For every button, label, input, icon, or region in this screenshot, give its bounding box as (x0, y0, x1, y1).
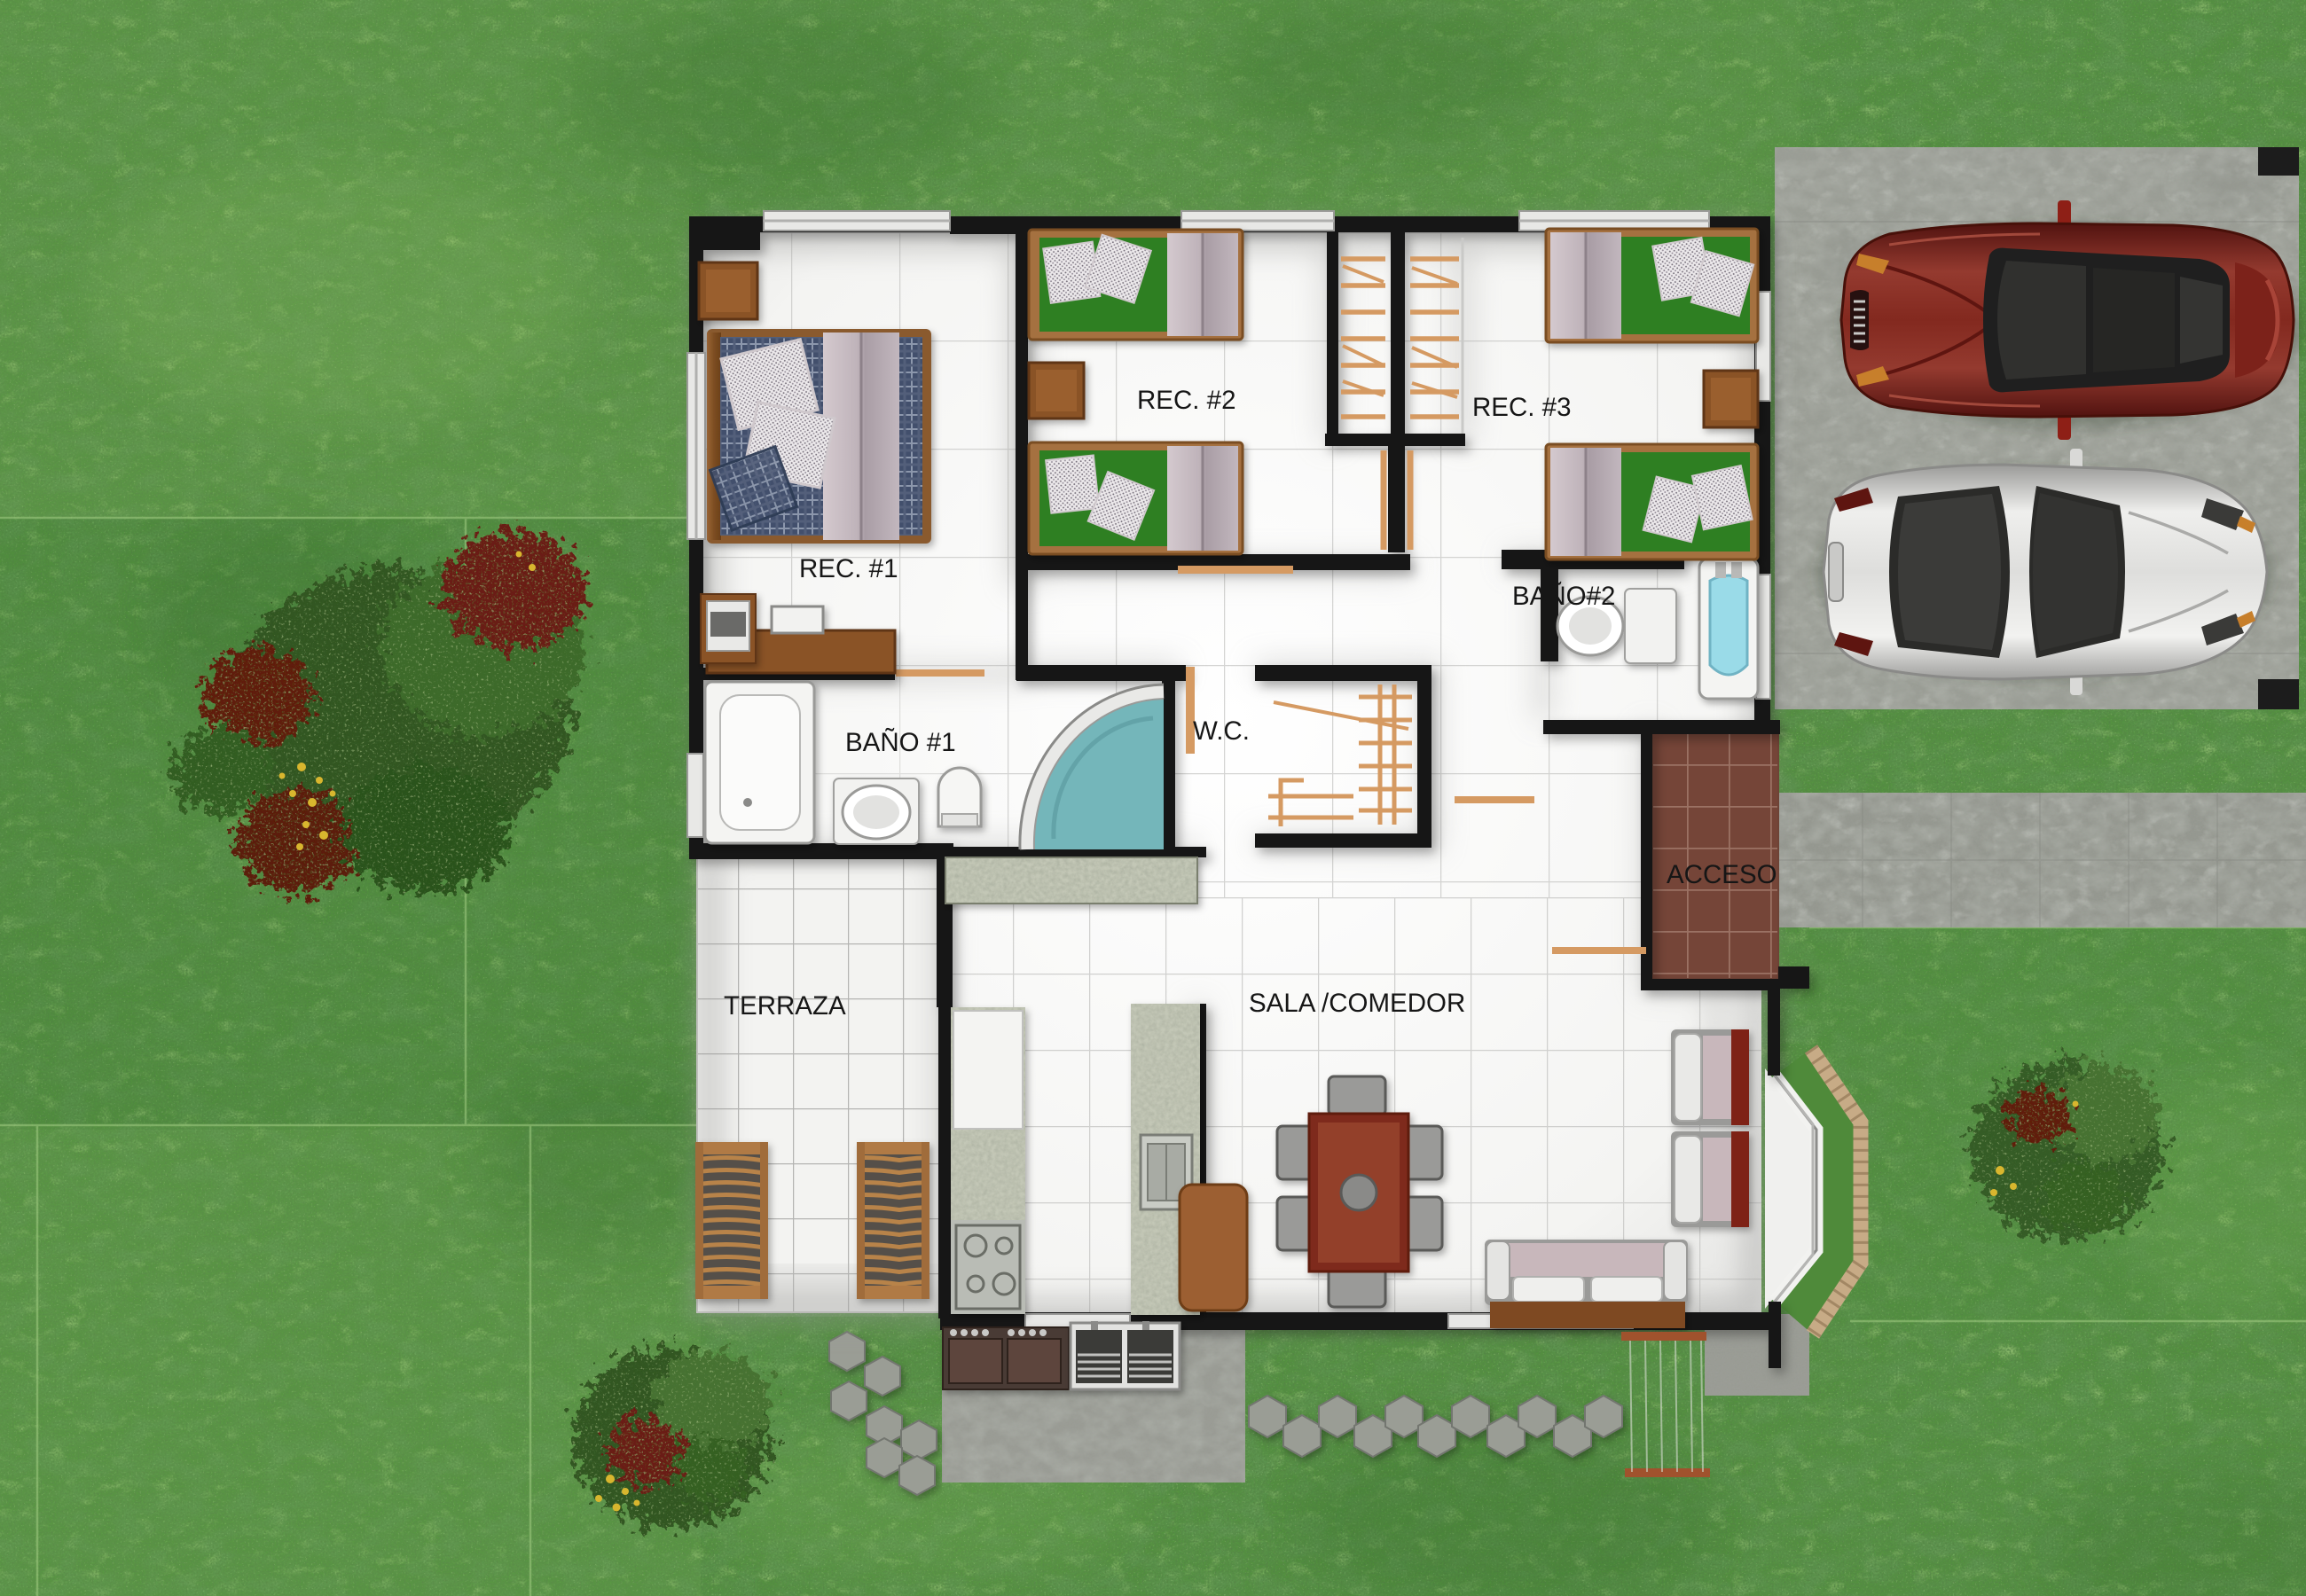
svg-text:BAÑO#2: BAÑO#2 (1512, 581, 1615, 611)
svg-text:REC. #3: REC. #3 (1472, 393, 1572, 422)
svg-text:ACCESO: ACCESO (1667, 860, 1777, 889)
svg-text:W.C.: W.C. (1193, 716, 1250, 746)
svg-text:SALA /COMEDOR: SALA /COMEDOR (1249, 989, 1465, 1018)
svg-text:TERRAZA: TERRAZA (724, 991, 846, 1021)
svg-text:REC. #2: REC. #2 (1137, 386, 1236, 415)
svg-text:BAÑO #1: BAÑO #1 (845, 727, 956, 757)
svg-text:REC. #1: REC. #1 (799, 554, 898, 583)
